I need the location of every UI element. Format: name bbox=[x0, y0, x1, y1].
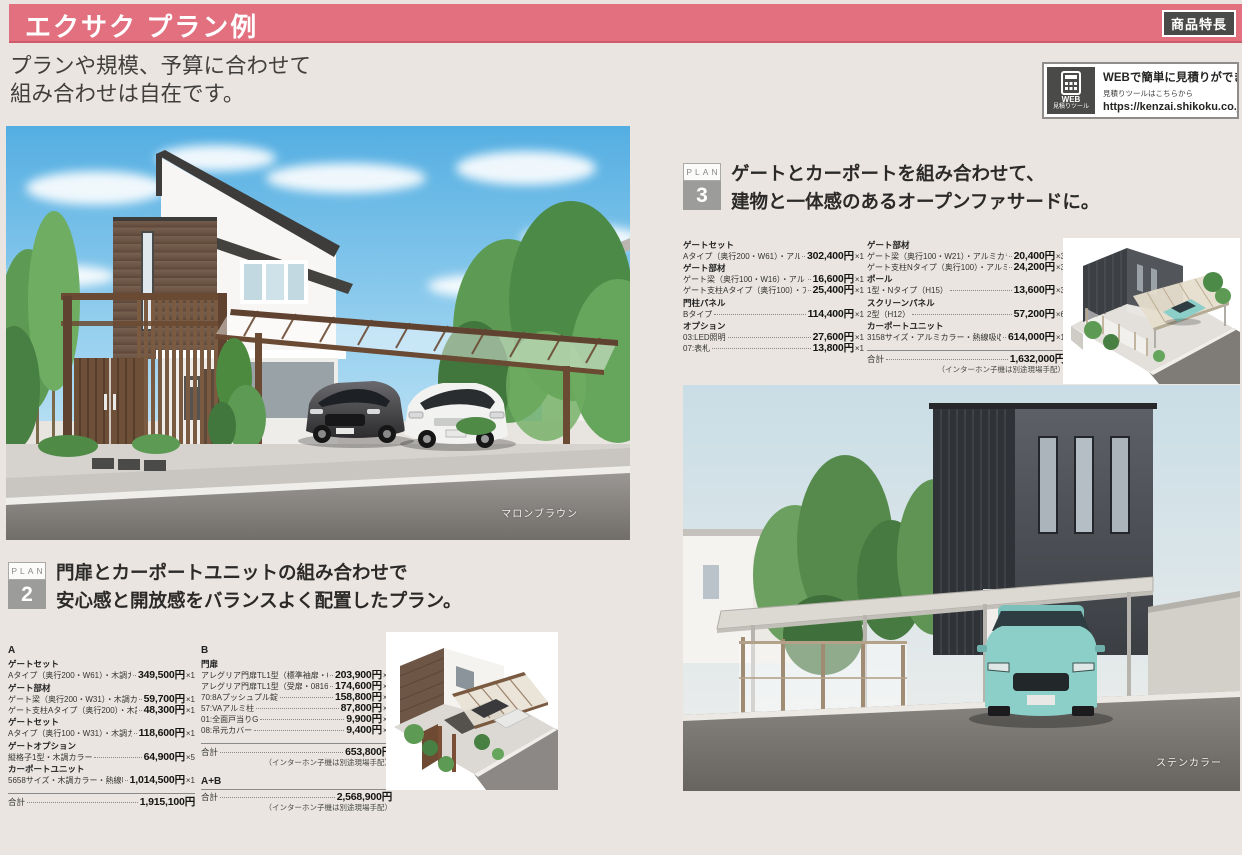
plan3-price-column-2: ゲート部材ゲート梁（奥行100・W21）・アルミカラー20,400円×3ゲート支… bbox=[867, 238, 1065, 374]
price-item-name: 57:VAアルミ柱 bbox=[201, 703, 254, 714]
price-quantity: ×5 bbox=[186, 752, 195, 763]
price-item-name: 03:LED照明 bbox=[683, 332, 726, 343]
price-item-name: ゲートセット bbox=[8, 717, 59, 728]
dotted-leader bbox=[220, 752, 343, 753]
price-item-name: ゲート部材 bbox=[8, 683, 51, 694]
dotted-leader bbox=[808, 279, 811, 280]
photo-caption-color: ステンカラー bbox=[1156, 754, 1222, 769]
price-item-name: 縦格子1型・木調カラー bbox=[8, 752, 92, 763]
price-row-note: （インターホン子機は別途現場手配） bbox=[867, 365, 1065, 374]
price-item-name: （インターホン子機は別途現場手配） bbox=[265, 803, 393, 812]
gate-handle bbox=[104, 394, 107, 410]
price-row-item: 57:VAアルミ柱87,800円×1 bbox=[201, 703, 392, 714]
plan3-isometric-illustration bbox=[1063, 238, 1240, 384]
price-row-total: 合計653,800円 bbox=[201, 743, 392, 758]
price-item-name: ゲート支柱Aタイプ（奥行200）・木調カラー bbox=[8, 705, 137, 716]
price-row-item: ゲート梁（奥行100・W21）・アルミカラー20,400円×3 bbox=[867, 251, 1065, 262]
price-row-item: Aタイプ（奥行200・W61）・木調カラー349,500円×1 bbox=[8, 670, 195, 681]
dotted-leader bbox=[254, 730, 344, 731]
plan3-heading-line2: 建物と一体感のあるオープンファサードに。 bbox=[731, 188, 1099, 216]
price-row-head: B bbox=[201, 645, 392, 656]
plan2-badge: PLAN 2 bbox=[8, 562, 46, 609]
price-value: 64,900円 bbox=[144, 752, 185, 763]
price-quantity: ×1 bbox=[186, 670, 195, 681]
price-item-name: 5658サイズ・木調カラー・熱線吸収ポリカ板 bbox=[8, 775, 123, 786]
web-icon-label1: WEB bbox=[1062, 95, 1081, 104]
price-row-note: （インターホン子機は別途現場手配） bbox=[201, 803, 392, 812]
plan3-photo: ステンカラー bbox=[683, 385, 1240, 791]
web-estimate-icon-block: WEB 見積りツール bbox=[1047, 67, 1095, 114]
price-item-name: 合計 bbox=[8, 797, 25, 808]
dotted-leader bbox=[330, 675, 333, 676]
plan3-heading-line1: ゲートとカーポートを組み合わせて、 bbox=[731, 160, 1099, 188]
price-item-name: Aタイプ（奥行100・W31）・木調カラー bbox=[8, 728, 132, 739]
dotted-leader bbox=[912, 314, 1012, 315]
price-quantity: ×1 bbox=[855, 309, 864, 320]
price-quantity: ×1 bbox=[186, 694, 195, 705]
price-item-name: ゲート部材 bbox=[683, 263, 726, 274]
dotted-leader bbox=[802, 256, 805, 257]
price-value: 13,600円 bbox=[1014, 285, 1055, 296]
plan2-heading: 門扉とカーポートユニットの組み合わせで 安心感と開放感をバランスよく配置したプラ… bbox=[56, 559, 462, 615]
price-item-name: ゲート支柱Aタイプ（奥行100）・アルミカラー bbox=[683, 285, 806, 296]
price-row-item: 07:表札13,800円×1 bbox=[683, 343, 864, 354]
price-row-item: Aタイプ（奥行100・W31）・木調カラー118,600円×1 bbox=[8, 728, 195, 739]
dotted-leader bbox=[1003, 337, 1006, 338]
price-row-group: オプション bbox=[683, 321, 864, 332]
price-row-item: ゲート梁（奥行100・W16）・アルミカラー16,600円×1 bbox=[683, 274, 864, 285]
price-value: 16,600円 bbox=[813, 274, 854, 285]
dotted-leader bbox=[330, 686, 333, 687]
price-row-total2: 合計2,568,900円 bbox=[201, 790, 392, 803]
price-value: 653,800円 bbox=[345, 747, 392, 758]
price-row-item: 2型（H12）57,200円×6 bbox=[867, 309, 1065, 320]
price-item-name: カーポートユニット bbox=[867, 321, 944, 332]
price-row-group: ゲート部材 bbox=[683, 263, 864, 274]
price-value: 59,700円 bbox=[144, 694, 185, 705]
catalog-page: エクサク プラン例 商品特長 プランや規模、予算に合わせて 組み合わせは自在です… bbox=[0, 0, 1242, 855]
price-value: 48,300円 bbox=[144, 705, 185, 716]
price-row-item: 08:吊元カバー9,400円×2 bbox=[201, 725, 392, 736]
price-row-group: カーポートユニット bbox=[8, 764, 195, 775]
subtitle: プランや規模、予算に合わせて 組み合わせは自在です。 bbox=[10, 52, 311, 108]
plan2-photo: マロンブラウン bbox=[6, 126, 630, 540]
dotted-leader bbox=[1009, 256, 1012, 257]
price-item-name: アレグリア門扉TL1型（標準袖扉・0816サイズ） bbox=[201, 670, 328, 681]
page-title: エクサク プラン例 bbox=[25, 7, 258, 44]
plan2-isometric-image bbox=[386, 632, 558, 790]
plan3-photo-illustration bbox=[683, 385, 1240, 791]
price-row-item: 3158サイズ・アルミカラー・熱線吸収ポリカ板614,000円×1 bbox=[867, 332, 1065, 343]
price-item-name: ポール bbox=[867, 274, 893, 285]
dotted-leader bbox=[886, 359, 1008, 360]
price-value: 57,200円 bbox=[1014, 309, 1055, 320]
web-url: https://kenzai.shikoku.co.jp/ bbox=[1103, 101, 1234, 113]
price-value: 13,800円 bbox=[813, 343, 854, 354]
price-row-item: アレグリア門扉TL1型（受扉・0816サイズ）174,600円×1 bbox=[201, 681, 392, 692]
price-item-name: スクリーンパネル bbox=[867, 298, 935, 309]
price-quantity: ×1 bbox=[855, 332, 864, 343]
plan3-badge-number: 3 bbox=[683, 181, 721, 210]
price-item-name: 合計 bbox=[867, 354, 884, 365]
price-item-name: オプション bbox=[683, 321, 726, 332]
price-value: 20,400円 bbox=[1014, 251, 1055, 262]
price-item-name: ゲート梁（奥行100・W16）・アルミカラー bbox=[683, 274, 806, 285]
dotted-leader bbox=[728, 337, 811, 338]
dotted-leader bbox=[1009, 267, 1012, 268]
plan3-price-column-1: ゲートセットAタイプ（奥行200・W61）・アルミカラー302,400円×1ゲー… bbox=[683, 238, 864, 354]
plan2-photo-illustration bbox=[6, 126, 630, 540]
price-value: 302,400円 bbox=[807, 251, 854, 262]
upper-window bbox=[240, 260, 308, 304]
price-row-group: ポール bbox=[867, 274, 1065, 285]
window-slits bbox=[1039, 437, 1129, 533]
price-quantity: ×1 bbox=[855, 343, 864, 354]
price-value: 2,568,900円 bbox=[337, 792, 392, 803]
plan3-badge: PLAN 3 bbox=[683, 163, 721, 210]
web-sub-text: 見積りツールはこちらから bbox=[1103, 88, 1234, 99]
plan2-badge-number: 2 bbox=[8, 580, 46, 609]
plan2-isometric-illustration bbox=[386, 632, 558, 790]
plan3-isometric-image bbox=[1063, 238, 1240, 384]
price-row-item: Bタイプ114,400円×1 bbox=[683, 309, 864, 320]
dotted-leader bbox=[712, 348, 811, 349]
price-row-note: （インターホン子機は別途現場手配） bbox=[201, 758, 392, 767]
price-value: 174,600円 bbox=[335, 681, 382, 692]
dotted-leader bbox=[125, 780, 128, 781]
gate-handle bbox=[113, 394, 116, 410]
header-bar: エクサク プラン例 商品特長 bbox=[9, 4, 1242, 43]
price-value: 349,500円 bbox=[138, 670, 185, 681]
price-item-name: （インターホン子機は別途現場手配） bbox=[265, 758, 393, 767]
plan3-heading: ゲートとカーポートを組み合わせて、 建物と一体感のあるオープンファサードに。 bbox=[731, 160, 1099, 216]
price-item-name: 2型（H12） bbox=[867, 309, 910, 320]
price-item-name: カーポートユニット bbox=[8, 764, 85, 775]
price-item-name: Aタイプ（奥行200・W61）・木調カラー bbox=[8, 670, 131, 681]
price-value: 118,600円 bbox=[139, 728, 185, 739]
price-item-name: ゲートセット bbox=[683, 240, 734, 251]
price-item-name: 1型・Nタイプ（H15） bbox=[867, 285, 948, 296]
dotted-leader bbox=[133, 675, 136, 676]
price-value: 27,600円 bbox=[813, 332, 854, 343]
plan3-badge-label: PLAN bbox=[683, 163, 721, 181]
screen-fence bbox=[739, 637, 907, 717]
web-estimate-box: WEB 見積りツール WEBで簡単に見積りができます。 見積りツールはこちらから… bbox=[1042, 62, 1239, 119]
carport-post bbox=[563, 366, 570, 450]
price-row-group: 門柱パネル bbox=[683, 298, 864, 309]
price-value: 614,000円 bbox=[1008, 332, 1055, 343]
price-item-name: ゲートセット bbox=[8, 659, 59, 670]
price-row-item: 縦格子1型・木調カラー64,900円×5 bbox=[8, 752, 195, 763]
feature-badge: 商品特長 bbox=[1162, 10, 1236, 37]
price-item-name: A bbox=[8, 645, 15, 656]
plan2-heading-line1: 門扉とカーポートユニットの組み合わせで bbox=[56, 559, 462, 587]
plan2-price-column-a: AゲートセットAタイプ（奥行200・W61）・木調カラー349,500円×1ゲー… bbox=[8, 645, 195, 808]
price-row-group: ゲートオプション bbox=[8, 741, 195, 752]
dotted-leader bbox=[139, 699, 142, 700]
price-quantity: ×1 bbox=[186, 705, 195, 716]
price-item-name: ゲート梁（奥行100・W21）・アルミカラー bbox=[867, 251, 1007, 262]
price-item-name: 08:吊元カバー bbox=[201, 725, 252, 736]
price-row-group: ゲートセット bbox=[683, 240, 864, 251]
price-row-item: ゲート支柱Nタイプ（奥行100）・アルミカラー24,200円×3 bbox=[867, 262, 1065, 273]
price-item-name: ゲート支柱Nタイプ（奥行100）・アルミカラー bbox=[867, 262, 1007, 273]
ground bbox=[6, 444, 630, 540]
price-value: 1,915,100円 bbox=[140, 797, 195, 808]
web-estimate-texts: WEBで簡単に見積りができます。 見積りツールはこちらから https://ke… bbox=[1098, 64, 1237, 117]
price-item-name: A+B bbox=[201, 776, 221, 787]
price-item-name: ゲートオプション bbox=[8, 741, 76, 752]
price-item-name: 合計 bbox=[201, 792, 218, 803]
dotted-leader bbox=[808, 290, 811, 291]
price-value: 9,900円 bbox=[346, 714, 382, 725]
plan2-badge-label: PLAN bbox=[8, 562, 46, 580]
price-row-group: スクリーンパネル bbox=[867, 298, 1065, 309]
price-row-group: ゲートセット bbox=[8, 659, 195, 670]
price-row-total: 合計1,915,100円 bbox=[8, 793, 195, 808]
price-row-head: A bbox=[8, 645, 195, 656]
price-row-group: ゲート部材 bbox=[8, 683, 195, 694]
price-item-name: 合計 bbox=[201, 747, 218, 758]
subtitle-line1: プランや規模、予算に合わせて bbox=[10, 52, 311, 80]
price-value: 158,800円 bbox=[335, 692, 382, 703]
web-icon-label2: 見積りツール bbox=[1053, 104, 1089, 111]
plan2-price-column-b: B門扉アレグリア門扉TL1型（標準袖扉・0816サイズ）203,900円×1アレ… bbox=[201, 645, 392, 812]
plan2-heading-line2: 安心感と開放感をバランスよく配置したプラン。 bbox=[56, 587, 462, 615]
dotted-leader bbox=[220, 797, 335, 798]
price-item-name: B bbox=[201, 645, 208, 656]
dotted-leader bbox=[950, 290, 1012, 291]
price-row-item: ゲート支柱Aタイプ（奥行200）・木調カラー48,300円×1 bbox=[8, 705, 195, 716]
price-value: 25,400円 bbox=[813, 285, 854, 296]
price-row-item: 01:全面戸当りG9,900円×1 bbox=[201, 714, 392, 725]
price-value: 9,400円 bbox=[346, 725, 382, 736]
price-item-name: 70:8Aプッシュプル錠 bbox=[201, 692, 278, 703]
dotted-leader bbox=[714, 314, 805, 315]
price-item-name: 07:表札 bbox=[683, 343, 710, 354]
price-item-name: （インターホン子機は別途現場手配） bbox=[938, 365, 1066, 374]
dotted-leader bbox=[27, 802, 138, 803]
price-row-item: 70:8Aプッシュプル錠158,800円×1 bbox=[201, 692, 392, 703]
price-quantity: ×1 bbox=[855, 251, 864, 262]
price-item-name: 門柱パネル bbox=[683, 298, 726, 309]
dotted-leader bbox=[256, 708, 339, 709]
price-quantity: ×1 bbox=[186, 775, 195, 786]
price-row-item: 5658サイズ・木調カラー・熱線吸収ポリカ板1,014,500円×1 bbox=[8, 775, 195, 786]
gate-doors bbox=[74, 358, 144, 450]
price-row-item: 03:LED照明27,600円×1 bbox=[683, 332, 864, 343]
price-row-group: カーポートユニット bbox=[867, 321, 1065, 332]
price-value: 1,014,500円 bbox=[130, 775, 185, 786]
price-value: 1,632,000円 bbox=[1010, 354, 1065, 365]
dotted-leader bbox=[134, 733, 137, 734]
photo-caption-color: マロンブラウン bbox=[501, 505, 578, 520]
price-row-group: 門扉 bbox=[201, 659, 392, 670]
dotted-leader bbox=[260, 719, 344, 720]
price-row-item: Aタイプ（奥行200・W61）・アルミカラー302,400円×1 bbox=[683, 251, 864, 262]
price-item-name: 3158サイズ・アルミカラー・熱線吸収ポリカ板 bbox=[867, 332, 1001, 343]
price-quantity: ×1 bbox=[855, 285, 864, 296]
price-quantity: ×1 bbox=[855, 274, 864, 285]
price-row-total: 合計1,632,000円 bbox=[867, 350, 1065, 365]
price-item-name: 01:全面戸当りG bbox=[201, 714, 258, 725]
price-row-item: ゲート梁（奥行200・W31）・木調カラー59,700円×1 bbox=[8, 694, 195, 705]
dotted-leader bbox=[280, 697, 333, 698]
subtitle-line2: 組み合わせは自在です。 bbox=[10, 80, 311, 108]
price-item-name: Bタイプ bbox=[683, 309, 712, 320]
price-row-item: アレグリア門扉TL1型（標準袖扉・0816サイズ）203,900円×1 bbox=[201, 670, 392, 681]
dotted-leader bbox=[94, 757, 141, 758]
price-quantity: ×1 bbox=[186, 728, 195, 739]
price-value: 114,400円 bbox=[808, 309, 854, 320]
price-item-name: ゲート部材 bbox=[867, 240, 910, 251]
price-item-name: 門扉 bbox=[201, 659, 218, 670]
price-row-item: ゲート支柱Aタイプ（奥行100）・アルミカラー25,400円×1 bbox=[683, 285, 864, 296]
price-value: 87,800円 bbox=[341, 703, 382, 714]
web-headline: WEBで簡単に見積りができます。 bbox=[1103, 69, 1234, 85]
price-row-group: ゲート部材 bbox=[867, 240, 1065, 251]
price-value: 24,200円 bbox=[1014, 262, 1055, 273]
price-item-name: ゲート梁（奥行200・W31）・木調カラー bbox=[8, 694, 137, 705]
dotted-leader bbox=[139, 710, 142, 711]
price-row-head2: A+B bbox=[201, 776, 392, 790]
price-row-item: 1型・Nタイプ（H15）13,600円×3 bbox=[867, 285, 1065, 296]
price-item-name: Aタイプ（奥行200・W61）・アルミカラー bbox=[683, 251, 800, 262]
price-value: 203,900円 bbox=[335, 670, 382, 681]
price-item-name: アレグリア門扉TL1型（受扉・0816サイズ） bbox=[201, 681, 328, 692]
price-row-group: ゲートセット bbox=[8, 717, 195, 728]
calculator-icon bbox=[1059, 71, 1083, 95]
